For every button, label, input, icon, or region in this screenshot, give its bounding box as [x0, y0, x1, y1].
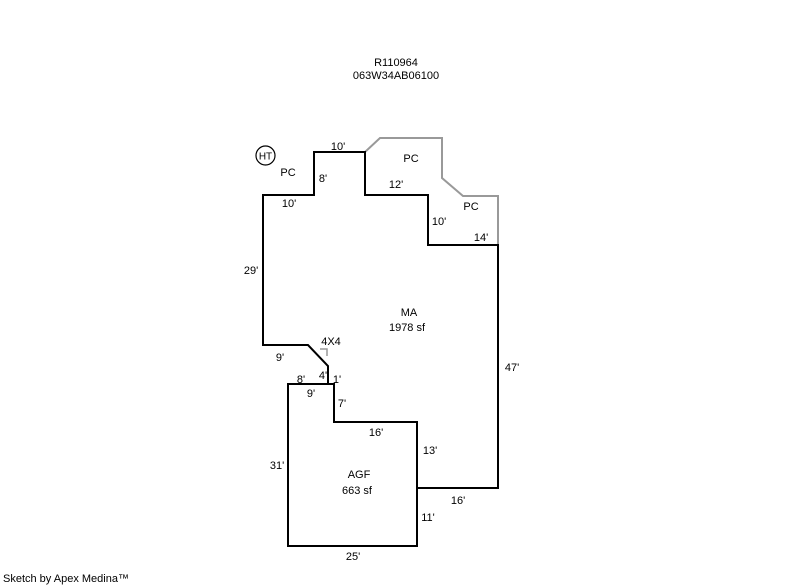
porch-label-right: PC [463, 201, 478, 213]
dim-garage-16: 16' [369, 427, 383, 439]
porch-cover-outline [365, 138, 498, 245]
dim-upper-12: 12' [389, 179, 403, 191]
dim-left-29: 29' [244, 265, 258, 277]
garage-size: 663 sf [342, 485, 373, 497]
dim-right-47: 47' [505, 362, 519, 374]
sketch-id-title: R110964 [374, 57, 418, 69]
parcel-number-title: 063W34AB06100 [353, 70, 439, 82]
garage-outline [288, 384, 417, 546]
dim-garage-top-8: 8' [297, 374, 305, 386]
corner-4x4-label: 4X4 [321, 336, 341, 348]
dim-top-10: 10' [331, 141, 345, 153]
main-area-size: 1978 sf [389, 322, 426, 334]
dim-notch-1: 1' [333, 374, 341, 386]
water-heater-label: HT [259, 152, 272, 163]
sketch-credit: Sketch by Apex Medina™ [3, 573, 129, 585]
porch-label-top-left: PC [280, 167, 295, 179]
property-sketch-canvas: R110964 063W34AB06100 HT PC PC PC MA 197… [0, 0, 800, 587]
dim-garage-7: 7' [338, 398, 346, 410]
dim-shared-13: 13' [423, 445, 437, 457]
dim-step-8: 8' [319, 173, 327, 185]
corner-4x4-mark [320, 349, 327, 356]
dim-garage-bottom-25: 25' [346, 551, 360, 563]
dim-garage-top-9: 9' [307, 388, 315, 400]
property-sketch-page: R110964 063W34AB06100 HT PC PC PC MA 197… [0, 0, 800, 587]
dim-garage-right-11: 11' [421, 512, 435, 524]
garage-code: AGF [348, 469, 371, 481]
dim-right-14: 14' [474, 232, 488, 244]
dim-upper-left-10: 10' [282, 198, 296, 210]
dim-notch-9: 9' [276, 352, 284, 364]
dim-bottom-16: 16' [451, 495, 465, 507]
dim-notch-4: 4' [319, 370, 327, 382]
porch-label-upper: PC [403, 153, 418, 165]
dim-garage-left-31: 31' [270, 460, 284, 472]
dim-right-step-10: 10' [432, 216, 446, 228]
main-area-code: MA [401, 307, 418, 319]
